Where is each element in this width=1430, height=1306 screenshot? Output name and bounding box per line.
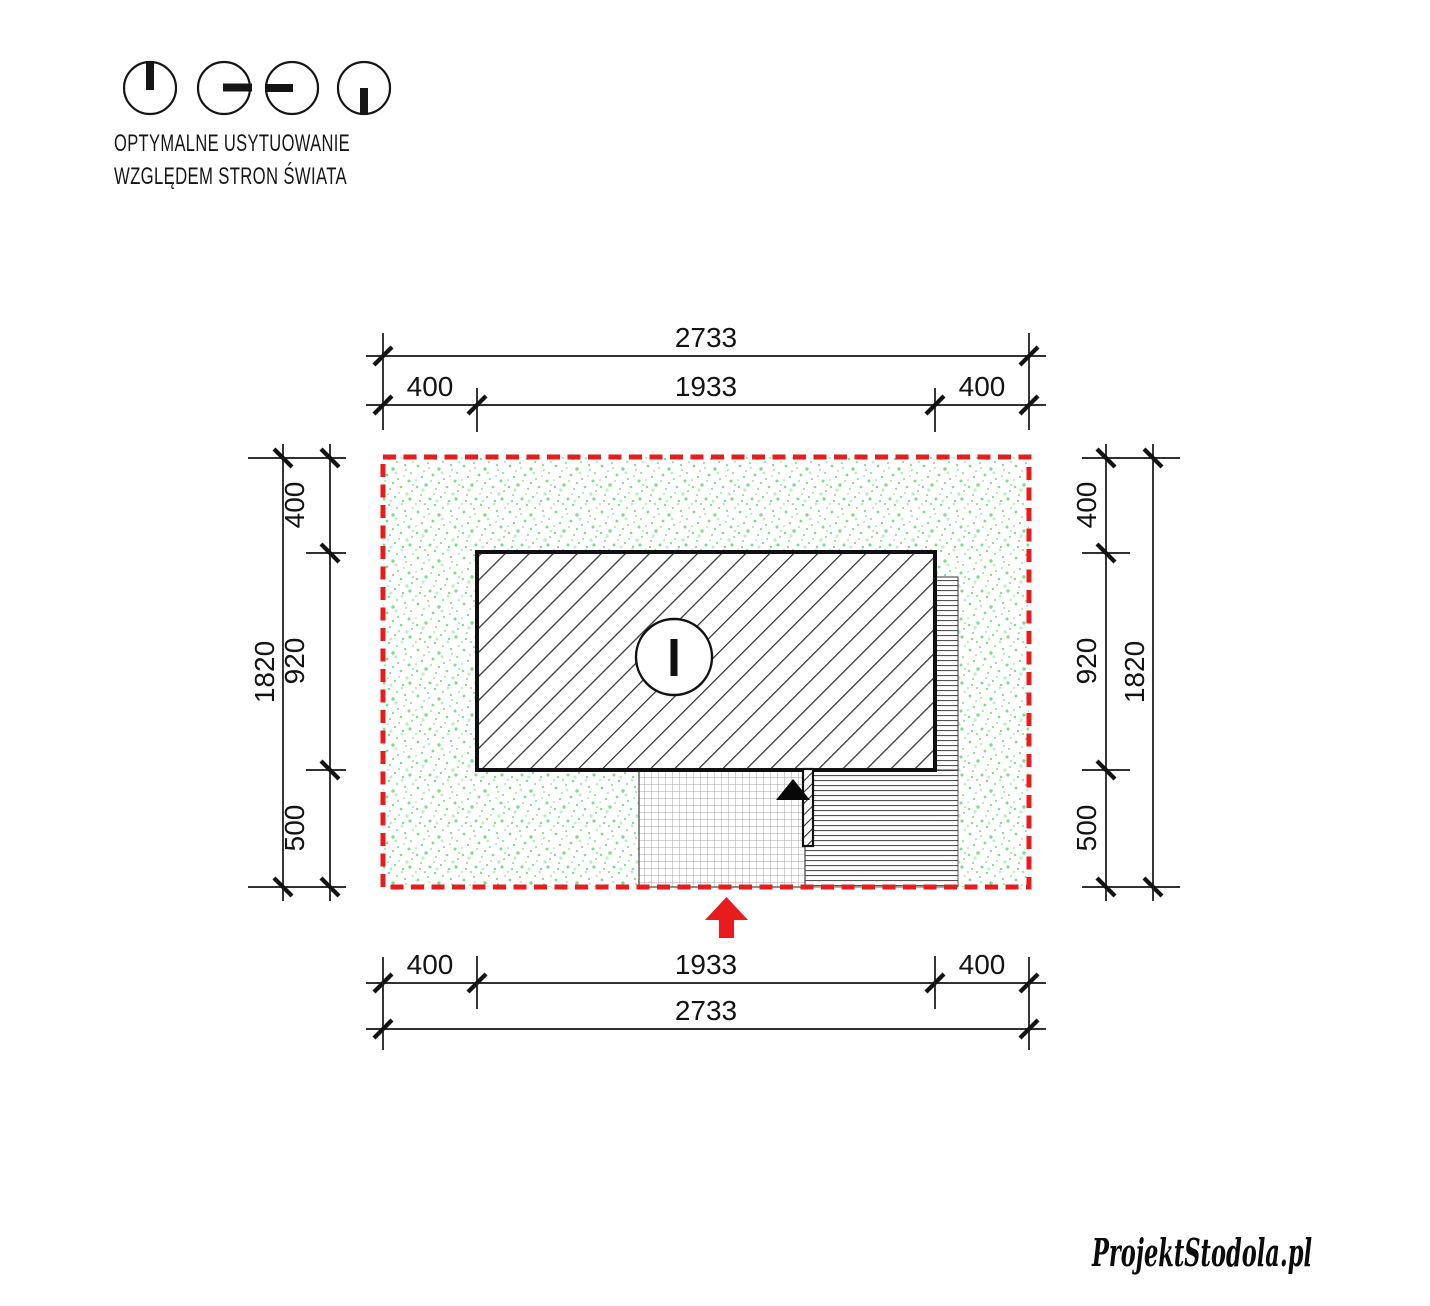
dimension-right: 400 920 500 1820 [1071, 444, 1180, 901]
site-plan-page: OPTYMALNE USYTUOWANIE WZGLĘDEM STRON ŚWI… [0, 0, 1430, 1306]
chimney-circle-icon [636, 619, 712, 695]
clock-hand-down-icon [338, 62, 390, 115]
dim-left-seg-top: 400 [279, 482, 310, 529]
dim-right-total: 1820 [1119, 641, 1150, 703]
clock-hand-up-icon [124, 61, 176, 114]
dim-bottom-seg-mid: 1933 [675, 949, 737, 980]
dim-right-seg-top: 400 [1071, 482, 1102, 529]
dim-bottom-seg-right: 400 [959, 949, 1006, 980]
driveway-grid [639, 770, 805, 887]
dim-bottom-seg-left: 400 [407, 949, 454, 980]
orientation-legend: OPTYMALNE USYTUOWANIE WZGLĘDEM STRON ŚWI… [114, 61, 390, 190]
dim-top-total: 2733 [675, 322, 737, 353]
dim-bottom-total: 2733 [675, 995, 737, 1026]
logo-text: ProjektStodola.pl [1091, 1230, 1312, 1275]
dim-top-seg-mid: 1933 [675, 371, 737, 402]
dim-top-seg-right: 400 [959, 371, 1006, 402]
dim-left-total: 1820 [249, 641, 280, 703]
site-plan-drawing: OPTYMALNE USYTUOWANIE WZGLĘDEM STRON ŚWI… [0, 0, 1430, 1306]
dim-right-seg-mid: 920 [1071, 638, 1102, 685]
dim-top-seg-left: 400 [407, 371, 454, 402]
dimension-left: 1820 400 920 500 [248, 444, 346, 901]
legend-title-line1: OPTYMALNE USYTUOWANIE [114, 130, 350, 157]
legend-title-line2: WZGLĘDEM STRON ŚWIATA [114, 162, 347, 190]
entrance-arrow-up-icon [705, 897, 748, 938]
dim-right-seg-bottom: 500 [1071, 805, 1102, 852]
dim-left-seg-bottom: 500 [279, 805, 310, 852]
terrace-side-strip [935, 577, 958, 770]
dimension-top: 2733 400 1933 400 [366, 322, 1046, 432]
terrace-bottom [805, 770, 958, 887]
clock-hand-left-icon [265, 62, 318, 114]
clock-hand-right-icon [198, 62, 252, 114]
entrance-door [803, 769, 813, 846]
dim-left-seg-mid: 920 [279, 638, 310, 685]
dimension-bottom: 400 1933 400 2733 [366, 949, 1046, 1050]
